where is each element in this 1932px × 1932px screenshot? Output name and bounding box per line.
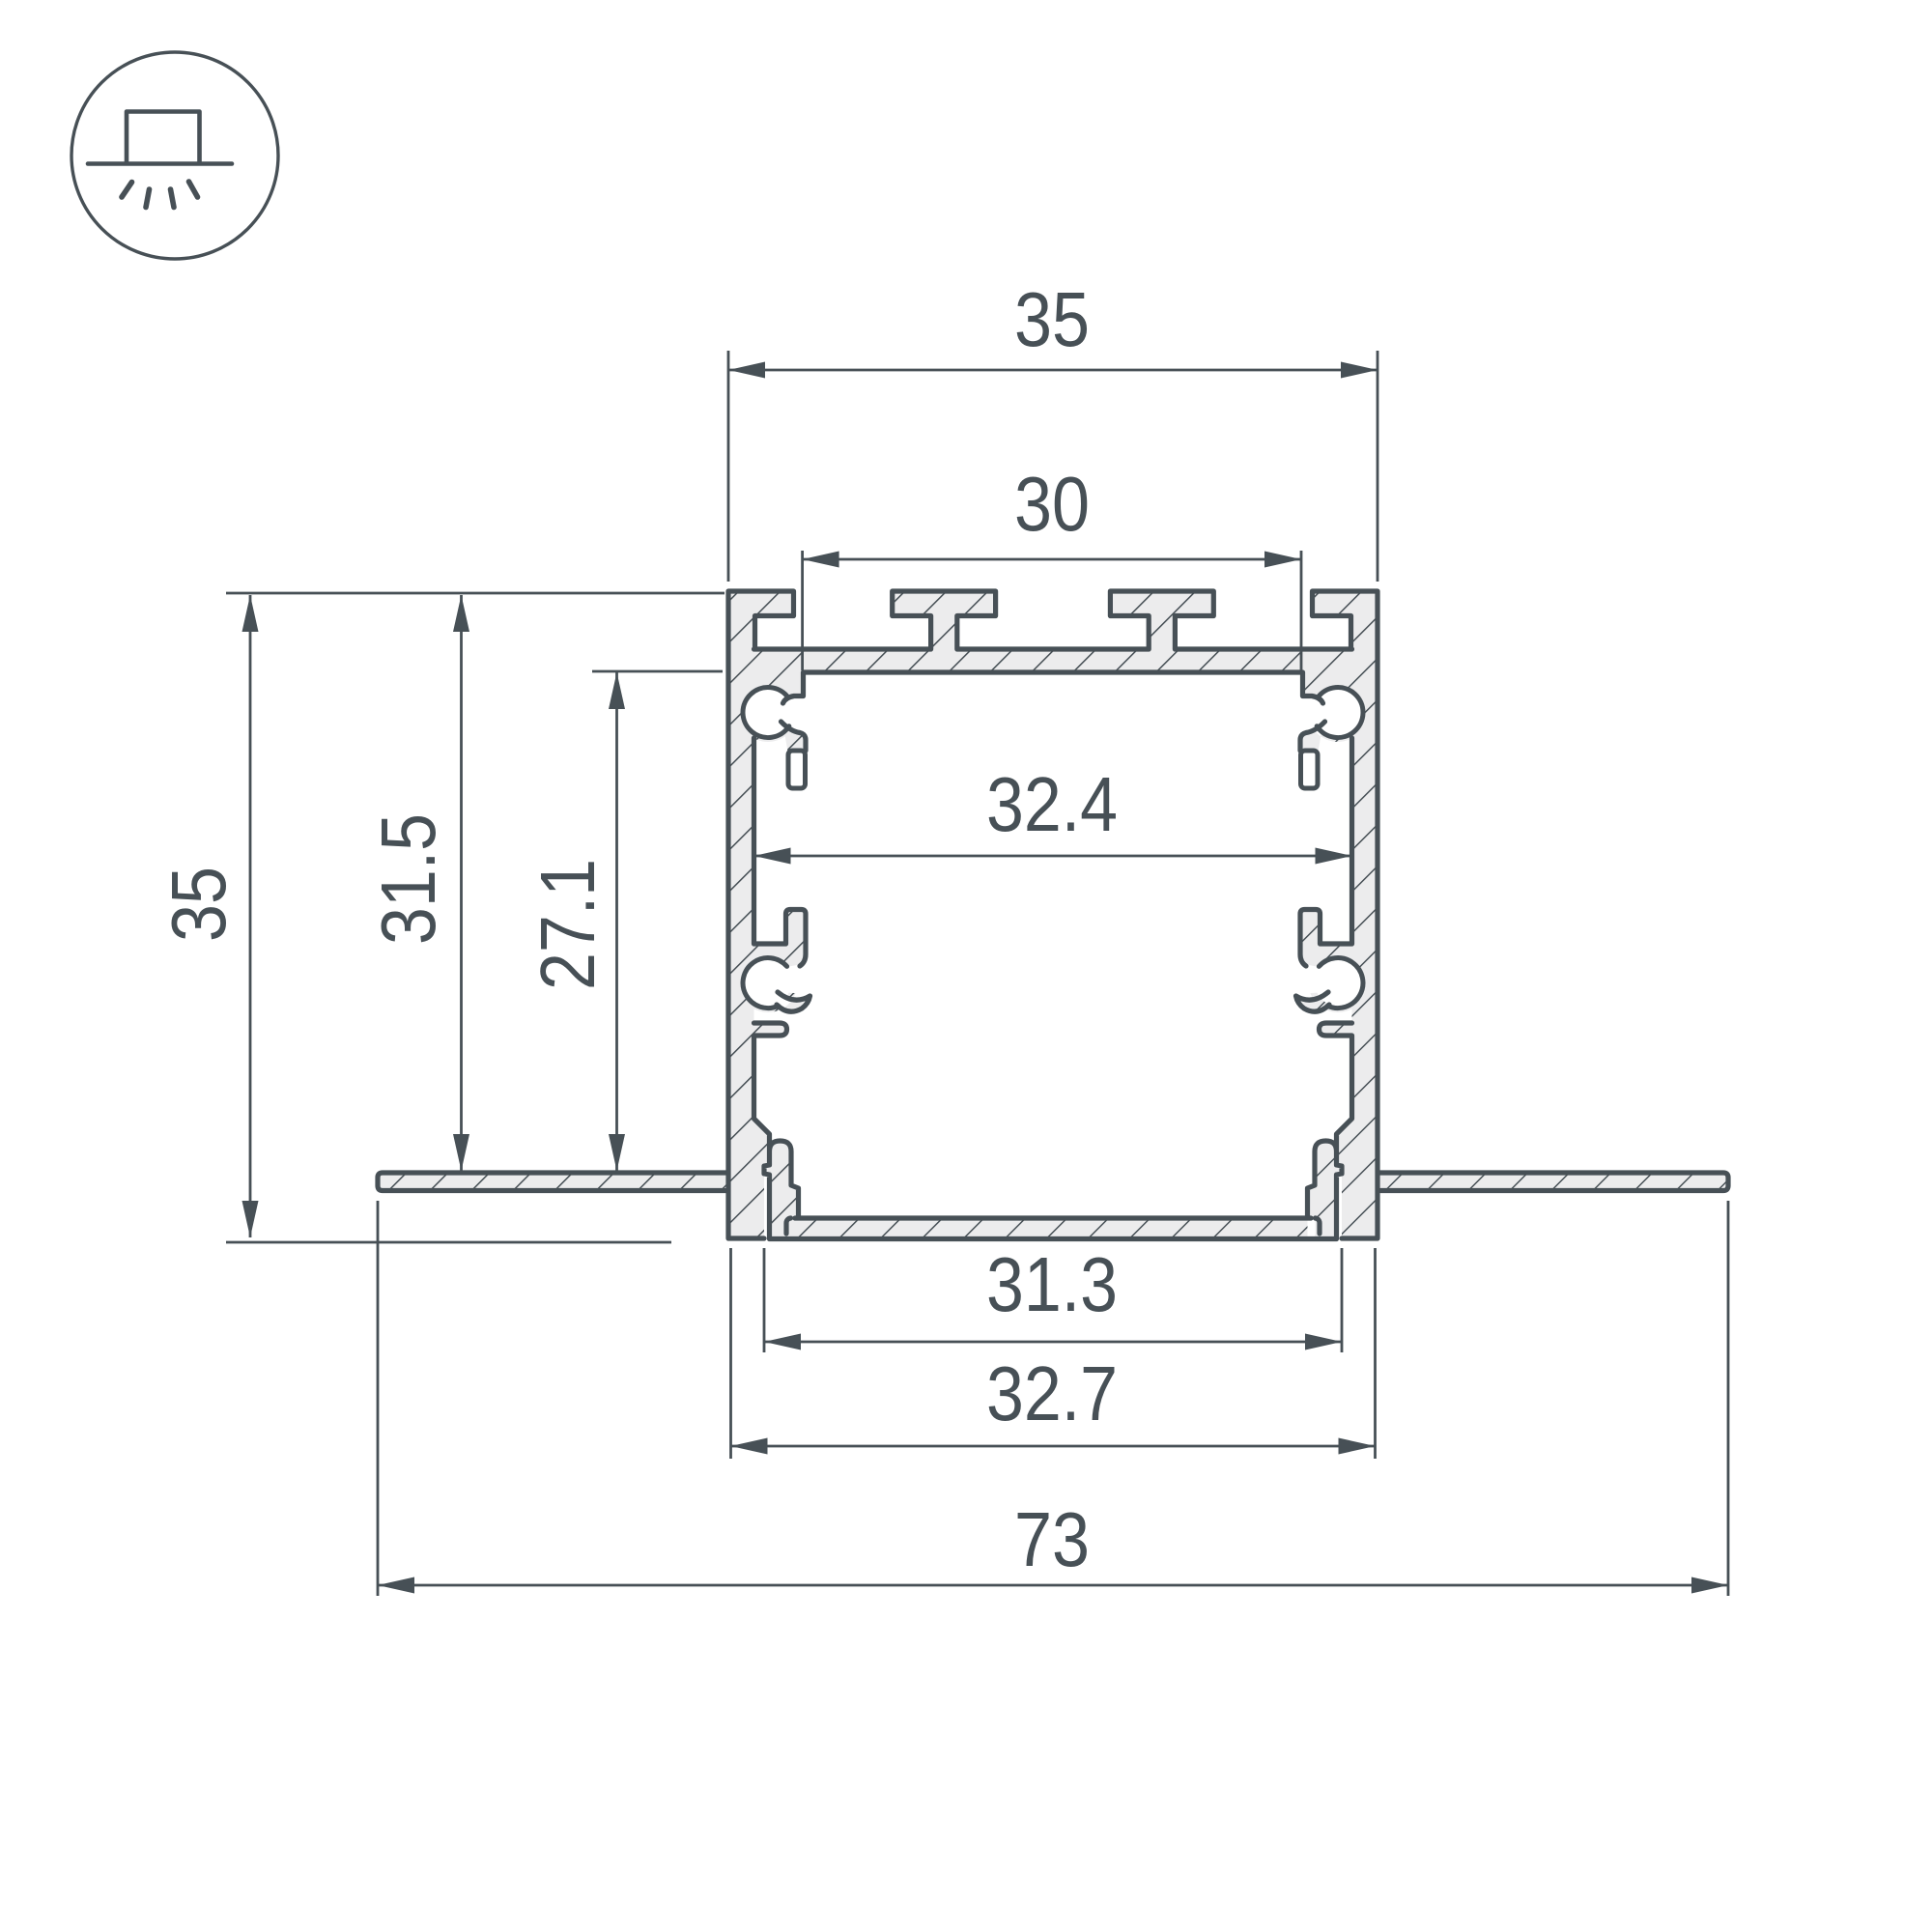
svg-text:35: 35 xyxy=(156,867,241,942)
svg-text:35: 35 xyxy=(1014,276,1090,362)
svg-text:32.4: 32.4 xyxy=(986,761,1118,847)
svg-text:31.3: 31.3 xyxy=(986,1241,1118,1327)
svg-text:31.5: 31.5 xyxy=(365,813,451,945)
svg-text:32.7: 32.7 xyxy=(986,1350,1118,1436)
svg-text:27.1: 27.1 xyxy=(525,859,611,990)
svg-text:30: 30 xyxy=(1014,461,1090,547)
svg-text:73: 73 xyxy=(1014,1496,1090,1582)
